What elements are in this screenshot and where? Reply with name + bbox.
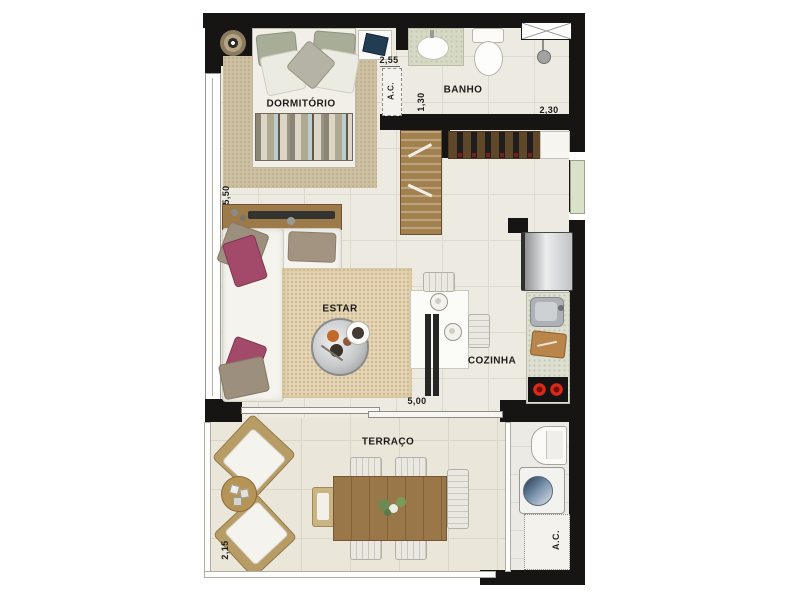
cooktop xyxy=(528,377,568,402)
sofa-pillow xyxy=(287,231,336,263)
round-ottoman xyxy=(220,30,246,56)
wardrobe-item xyxy=(408,143,432,158)
centerpiece-plant xyxy=(384,509,391,516)
bath-sink-counter xyxy=(408,28,464,66)
washer-door-icon xyxy=(523,476,553,506)
dim-living-width: 5,00 xyxy=(407,396,426,406)
serving-tray xyxy=(346,321,370,345)
terrace-railing-left xyxy=(204,422,211,574)
laptop-icon xyxy=(362,33,388,56)
washing-machine xyxy=(519,467,565,514)
bench xyxy=(425,314,431,396)
cup-icon xyxy=(233,497,242,506)
knife-icon xyxy=(537,341,557,347)
wall-bath-bottom xyxy=(380,114,570,130)
laundry-tub xyxy=(531,426,567,465)
wardrobe-item xyxy=(408,184,433,198)
window xyxy=(205,73,221,401)
faucet-icon xyxy=(430,30,434,38)
dining-chair xyxy=(350,539,382,560)
dining-chair xyxy=(395,539,427,560)
wall-bed-bath xyxy=(396,13,408,50)
room-label-cozinha: COZINHA xyxy=(468,356,516,367)
window-glass-line xyxy=(212,78,213,396)
ac-zone-lower xyxy=(524,514,570,570)
kitchen-faucet-icon xyxy=(558,305,564,311)
kitchen-sink-icon xyxy=(530,297,564,327)
wall-left-upper xyxy=(205,13,221,73)
wall-kitchen-stub xyxy=(508,218,528,233)
dim-bedroom-width: 2,55 xyxy=(379,55,398,65)
centerpiece-plant xyxy=(396,497,406,507)
kitchen-chair xyxy=(423,272,455,292)
bench xyxy=(433,314,439,396)
decor-knob xyxy=(240,215,246,221)
bath-sink-icon xyxy=(417,36,449,60)
bath-vent-window xyxy=(521,22,572,40)
room-label-terraco: TERRAÇO xyxy=(362,437,414,448)
plate-center xyxy=(435,298,441,304)
toilet-icon xyxy=(474,41,503,76)
terrace-side-table xyxy=(221,476,257,512)
dim-terrace-depth: 2,15 xyxy=(220,540,230,559)
dimension-tick xyxy=(380,66,400,67)
wardrobe xyxy=(400,130,442,235)
door-jamb xyxy=(569,152,585,160)
dining-chair-head xyxy=(312,487,335,527)
room-label-estar: ESTAR xyxy=(322,304,357,315)
shower-head-icon xyxy=(537,50,551,64)
sliding-door-panel xyxy=(368,411,503,418)
fridge xyxy=(521,232,573,291)
kitchen-chair xyxy=(468,314,490,348)
tub-drainer xyxy=(546,431,563,459)
wine-bottle-caps xyxy=(449,153,541,157)
dim-bath-width: 2,30 xyxy=(539,105,558,115)
ac-lower-label: A.C. xyxy=(551,530,561,550)
decor-flowers xyxy=(327,330,339,342)
hall-counter xyxy=(540,131,570,159)
sink-basin xyxy=(535,302,557,321)
ac-upper-label: A.C. xyxy=(387,82,396,100)
sliding-door-panel xyxy=(241,407,380,414)
dining-table xyxy=(333,476,447,541)
cutting-board-icon xyxy=(530,330,567,359)
kitchen-counter xyxy=(526,292,570,404)
place-setting xyxy=(444,323,462,341)
room-label-banho: BANHO xyxy=(444,85,483,96)
burner-icon xyxy=(533,383,546,396)
dim-side-length: 5,50 xyxy=(221,185,231,204)
plate-center xyxy=(449,328,455,334)
terrace-railing-bottom xyxy=(204,571,496,578)
place-setting xyxy=(430,293,448,311)
wall-right xyxy=(569,13,585,585)
dining-chair xyxy=(350,457,382,478)
bed-blanket xyxy=(255,113,353,161)
burner-icon xyxy=(550,383,563,396)
laundry-divider xyxy=(505,422,511,572)
dining-chair xyxy=(395,457,427,478)
room-label-dormitorio: DORMITÓRIO xyxy=(267,99,336,110)
dim-bath-depth: 1,30 xyxy=(416,92,426,111)
chair-cushion xyxy=(317,493,329,520)
decor-knob xyxy=(231,209,238,216)
wine-rack xyxy=(448,131,542,159)
tray-berries xyxy=(352,327,364,339)
entry-door xyxy=(570,160,585,214)
dining-bench xyxy=(447,469,469,529)
floor-plan: A.C. xyxy=(0,0,800,600)
tv-stand xyxy=(287,217,295,225)
wall-corner-left xyxy=(205,399,242,422)
